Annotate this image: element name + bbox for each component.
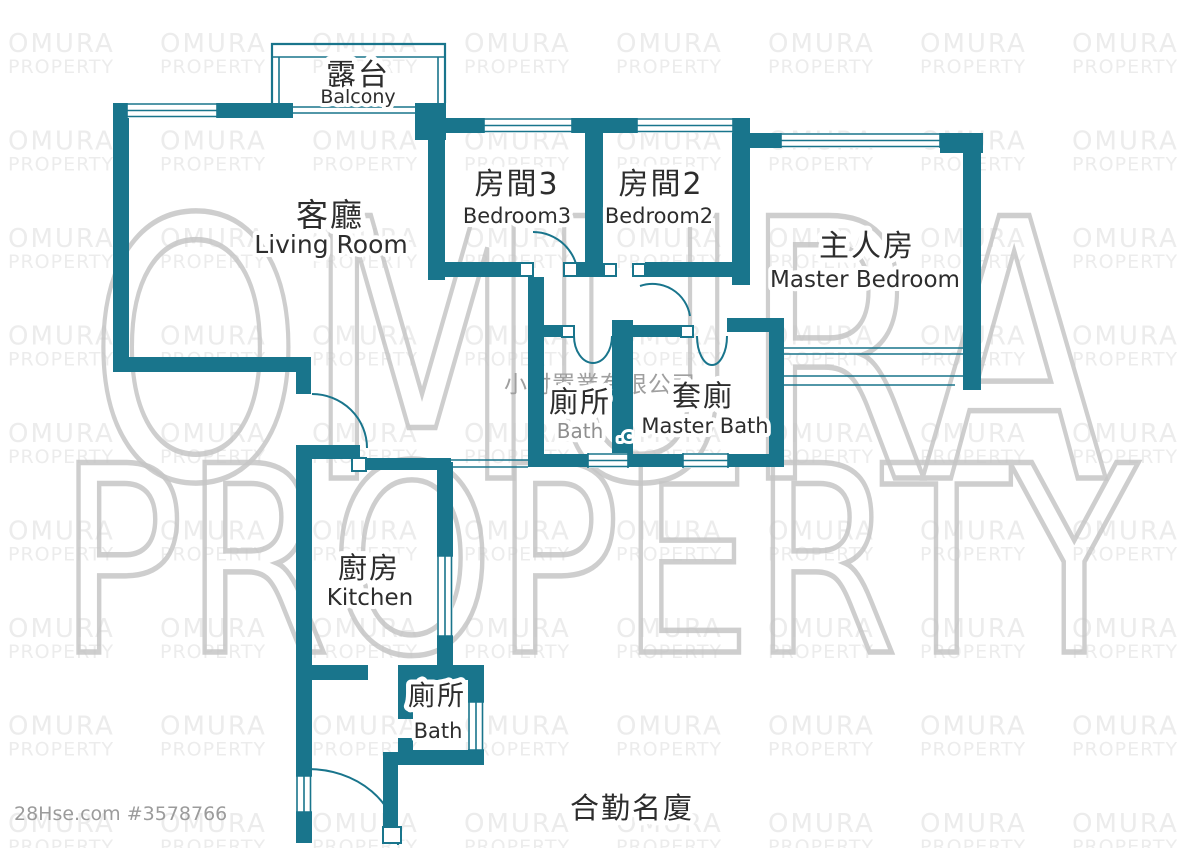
watermark-tile-text: OMURA [768, 809, 875, 839]
watermark-tile-text: OMURA [1072, 809, 1179, 839]
watermark-tile-text: PROPERTY [8, 739, 114, 761]
watermark-tile-text: PROPERTY [616, 739, 722, 761]
watermark-tile-text: OMURA [8, 712, 115, 742]
door-stop [681, 326, 693, 337]
watermark-tile-text: OMURA [1072, 29, 1179, 59]
lower-bath-label-cn: 廁所 [408, 681, 466, 712]
wall-segment [296, 372, 311, 394]
living-room-label-en: Living Room [254, 230, 407, 259]
watermark-tile-text: OMURA [312, 809, 419, 839]
wall-segment [113, 357, 311, 372]
floor-plan-page: OMURAPROPERTYOMURAPROPERTYOMURAPROPERTYO… [0, 0, 1200, 848]
watermark-tile-text: OMURA [768, 29, 875, 59]
bedroom2-label-cn: 房間2 [618, 167, 703, 202]
kitchen-label-en: Kitchen [327, 585, 413, 611]
watermark-tile-text: OMURA [616, 29, 723, 59]
watermark-tile-text: OMURA [768, 712, 875, 742]
wall-segment [428, 118, 484, 133]
watermark-tile-text: PROPERTY [768, 56, 874, 78]
watermark-tile-text: PROPERTY [1072, 836, 1178, 848]
watermark-tile-text: PROPERTY [312, 836, 418, 848]
wall-segment [528, 325, 564, 337]
watermark-tile-text: OMURA [1072, 712, 1179, 742]
master-bedroom-label-en: Master Bedroom [770, 267, 960, 293]
door-stop [562, 326, 574, 337]
wall-segment [528, 277, 544, 325]
watermark-tile-text: PROPERTY [8, 56, 114, 78]
wall-segment [113, 103, 129, 372]
watermark-tile-text: PROPERTY [1072, 56, 1178, 78]
kitchen-label-cn: 廚房 [338, 551, 400, 585]
wall-segment [437, 462, 453, 556]
wall-segment [603, 118, 637, 133]
watermark-tile-text: PROPERTY [464, 836, 570, 848]
door-stop [383, 827, 401, 843]
master-bath-label-cn: 套廁 [672, 379, 734, 413]
lower-bath-label-en: Bath [414, 719, 463, 743]
watermark-tile-text: OMURA [464, 809, 571, 839]
bedroom2-label-en: Bedroom2 [605, 204, 713, 228]
watermark-tile-text: PROPERTY [160, 739, 266, 761]
watermark-tile-text: PROPERTY [768, 836, 874, 848]
watermark-tile-text: PROPERTY [616, 836, 722, 848]
bedroom3-label-cn: 房間3 [474, 167, 559, 202]
floor-plan-svg: OMURAPROPERTYOMURAPROPERTYOMURAPROPERTYO… [0, 0, 1200, 848]
bath-label-en: Bath [557, 419, 604, 443]
listing-reference: 28Hse.com #3578766 [14, 803, 227, 825]
wall-segment [963, 133, 981, 390]
watermark-tile-text: PROPERTY [464, 56, 570, 78]
wall-segment [749, 133, 781, 148]
watermark-tile-text: PROPERTY [616, 56, 722, 78]
master-bedroom-label-cn: 主人房 [819, 229, 915, 264]
wall-segment [585, 118, 603, 268]
wall-segment [437, 636, 453, 667]
door-stop [520, 263, 533, 276]
wall-segment [645, 262, 733, 277]
wall-segment [528, 325, 544, 467]
bedroom3-label-en: Bedroom3 [463, 204, 571, 228]
watermark-tile-text: PROPERTY [8, 836, 114, 848]
watermark-tile-text: OMURA [920, 809, 1027, 839]
wall-segment [428, 262, 520, 277]
watermark-tile-text: PROPERTY [920, 56, 1026, 78]
wall-segment [428, 118, 445, 280]
watermark-tile-text: PROPERTY [920, 836, 1026, 848]
watermark-tile-text: OMURA [8, 29, 115, 59]
watermark-tile-text: OMURA [160, 712, 267, 742]
watermark-tile-text: PROPERTY [920, 739, 1026, 761]
watermark-tile-text: OMURA [616, 712, 723, 742]
watermark-tile-text: PROPERTY [160, 836, 266, 848]
watermark-tile-text: PROPERTY [160, 56, 266, 78]
wall-segment [217, 103, 293, 118]
balcony-label-en: Balcony [320, 86, 395, 108]
watermark-tile-text: PROPERTY [1072, 739, 1178, 761]
wall-segment [296, 445, 360, 459]
wall-segment [468, 665, 484, 702]
watermark-tile-text: OMURA [920, 29, 1027, 59]
watermark-tile-text: OMURA [920, 712, 1027, 742]
living-room-label-cn: 客廳 [296, 196, 364, 234]
building-name: 合勤名廈 [570, 791, 694, 825]
watermark-tile-text: OMURA [464, 29, 571, 59]
bath-label-cn: 廁所 [549, 385, 611, 419]
master-bath-label-en: Master Bath [641, 414, 768, 438]
wall-segment [769, 318, 784, 467]
door-stop [564, 263, 577, 276]
door-stop [604, 264, 616, 276]
watermark-tile-text: OMURA [160, 29, 267, 59]
watermark-fragment: .c [617, 426, 633, 445]
wall-segment [296, 665, 368, 680]
wall-segment [732, 118, 750, 285]
watermark-tile-text: PROPERTY [768, 739, 874, 761]
door-stop [352, 458, 366, 471]
door-stop [633, 264, 645, 276]
